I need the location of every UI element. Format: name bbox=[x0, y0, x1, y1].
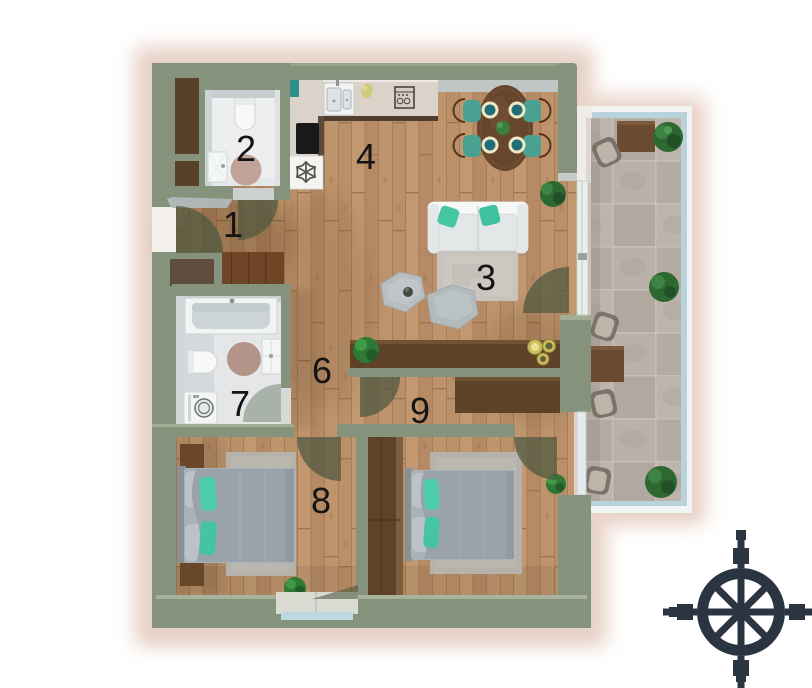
svg-text:1: 1 bbox=[223, 204, 243, 245]
svg-text:8: 8 bbox=[311, 480, 331, 521]
svg-text:7: 7 bbox=[230, 383, 250, 424]
svg-text:9: 9 bbox=[410, 390, 430, 431]
svg-text:3: 3 bbox=[476, 257, 496, 298]
svg-text:2: 2 bbox=[236, 128, 256, 169]
svg-text:6: 6 bbox=[312, 350, 332, 391]
svg-text:4: 4 bbox=[356, 136, 376, 177]
